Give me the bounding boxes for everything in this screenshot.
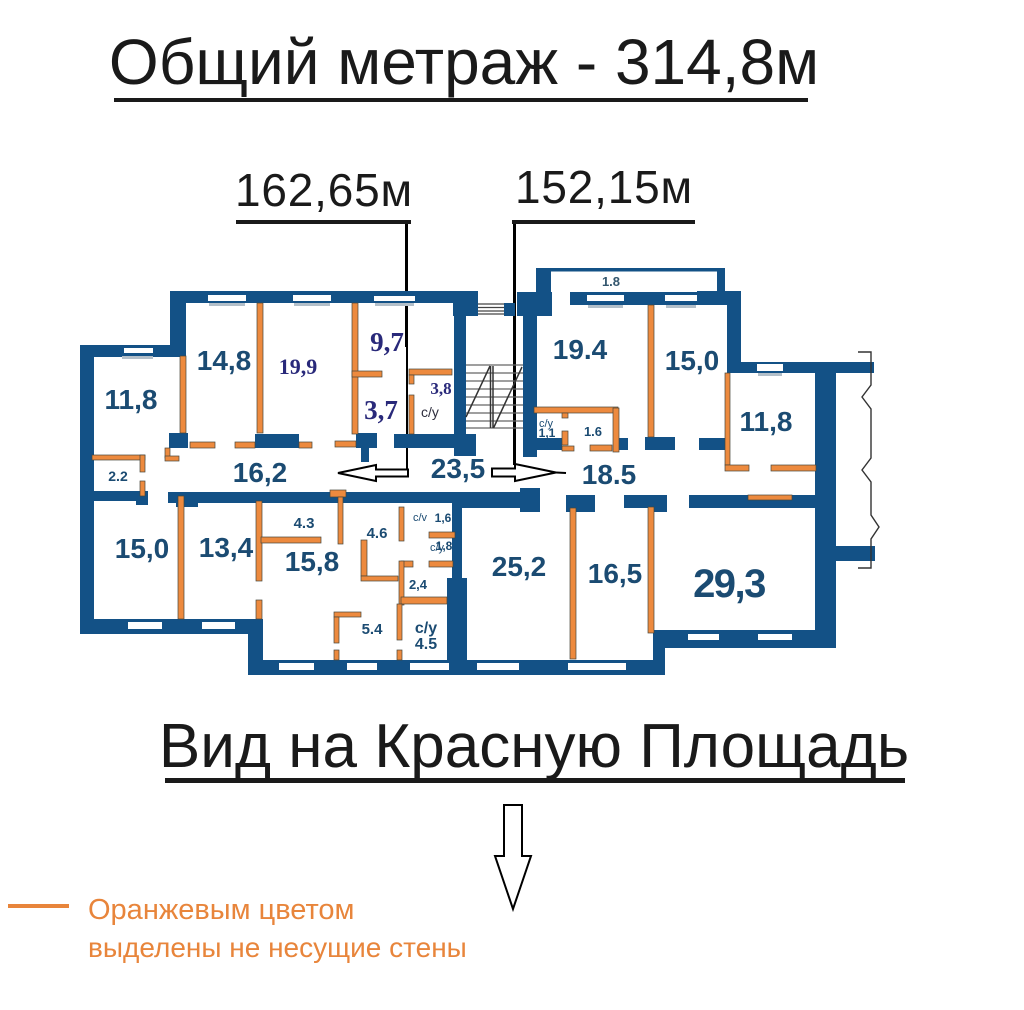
svg-text:с/у: с/у [430, 542, 445, 554]
svg-text:4.3: 4.3 [294, 515, 315, 532]
svg-text:выделены не несущие стены: выделены не несущие стены [88, 932, 467, 963]
svg-text:1,6: 1,6 [435, 511, 452, 525]
svg-text:с/у: с/у [415, 620, 437, 637]
svg-text:4.5: 4.5 [415, 636, 437, 653]
svg-text:11,8: 11,8 [740, 406, 793, 437]
svg-text:15,8: 15,8 [285, 546, 340, 577]
svg-text:с/у: с/у [539, 418, 554, 430]
svg-text:16,2: 16,2 [233, 457, 288, 488]
svg-text:152,15м: 152,15м [515, 161, 693, 213]
svg-text:3,8: 3,8 [430, 379, 451, 398]
svg-text:19,9: 19,9 [279, 354, 318, 379]
svg-text:Общий метраж - 314,8м: Общий метраж - 314,8м [109, 26, 819, 98]
svg-text:16,5: 16,5 [588, 558, 643, 589]
svg-text:Оранжевым цветом: Оранжевым цветом [88, 894, 354, 926]
svg-text:1.6: 1.6 [584, 424, 602, 439]
svg-text:14,8: 14,8 [197, 345, 252, 376]
svg-text:18.5: 18.5 [582, 459, 637, 490]
svg-text:13,4: 13,4 [199, 532, 254, 563]
svg-text:1.8: 1.8 [602, 274, 620, 289]
svg-text:29,3: 29,3 [693, 562, 765, 606]
svg-text:15,0: 15,0 [665, 345, 720, 376]
svg-text:162,65м: 162,65м [235, 164, 413, 216]
svg-text:9,7: 9,7 [370, 327, 404, 357]
svg-text:3,7: 3,7 [364, 395, 398, 425]
svg-text:с/v: с/v [413, 512, 428, 524]
svg-text:19.4: 19.4 [553, 334, 608, 365]
svg-text:4.6: 4.6 [367, 525, 388, 542]
svg-text:11,8: 11,8 [105, 384, 158, 415]
svg-text:5.4: 5.4 [362, 621, 384, 638]
svg-text:23,5: 23,5 [431, 453, 486, 484]
svg-text:Вид на Красную Площадь: Вид на Красную Площадь [159, 712, 909, 781]
svg-text:с/у: с/у [421, 404, 439, 420]
svg-text:2,4: 2,4 [409, 577, 428, 592]
svg-text:25,2: 25,2 [492, 551, 547, 582]
svg-text:2.2: 2.2 [108, 468, 128, 484]
svg-text:15,0: 15,0 [115, 533, 170, 564]
